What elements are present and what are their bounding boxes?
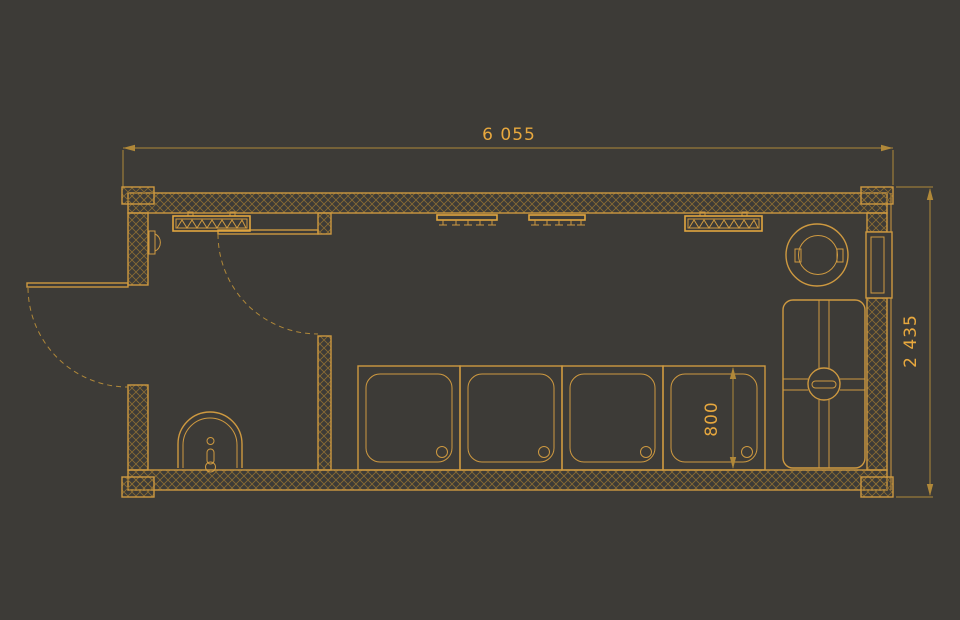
dimension-overall-length: 6 055 [123, 125, 893, 187]
toilet-valve-icon [207, 438, 214, 445]
drain-icon [539, 447, 550, 458]
water-heater-tab-left [795, 249, 801, 262]
wall-handle-bump [155, 234, 160, 251]
wall-top [128, 193, 887, 213]
coat-hook-rail-right [529, 215, 585, 225]
dimension-overall-depth: 2 435 [896, 187, 933, 497]
shower-unit-body [783, 300, 865, 468]
arrow-up-icon [730, 367, 736, 379]
pilaster-bottom-left [122, 477, 154, 497]
water-heater-top [799, 236, 838, 275]
arrow-down-icon [927, 484, 933, 496]
drain-icon [641, 447, 652, 458]
pilaster-bottom-right [861, 477, 893, 497]
pilaster-top-left [122, 187, 154, 204]
toilet [178, 412, 242, 472]
radiator-fins-icon [689, 220, 758, 228]
arrow-down-icon [730, 457, 736, 469]
shower-unit-drain [808, 368, 840, 400]
wall-bottom [128, 470, 887, 490]
radiator-fins-icon [177, 220, 246, 228]
drain-icon [437, 447, 448, 458]
shower-unit [783, 300, 865, 468]
arrow-up-icon [927, 188, 933, 200]
water-heater [786, 224, 848, 286]
window-frame [866, 232, 892, 298]
wall-right-lower [867, 298, 887, 470]
drain-icon [742, 447, 753, 458]
hook-rail-bar [529, 215, 585, 220]
hook-rail-bar [437, 215, 497, 220]
wall-left-upper [128, 213, 148, 285]
floor-plan-canvas: 6 055 2 435 [0, 0, 960, 620]
toilet-bowl-outer [178, 412, 242, 468]
partition-upper [318, 213, 331, 234]
interior-door [218, 230, 318, 334]
arrow-left-icon [123, 145, 135, 151]
radiator-right [685, 212, 762, 231]
overall-length-label: 6 055 [482, 125, 536, 145]
shower-tray-2 [460, 366, 562, 470]
wall-left-lower [128, 385, 148, 470]
entrance-door-swing-arc [28, 288, 128, 387]
radiator-left [173, 212, 250, 231]
coat-hook-rail-left [437, 215, 497, 225]
entrance-door [27, 283, 128, 387]
shower-unit-frame [783, 300, 865, 468]
shower-tray-1 [358, 366, 460, 470]
pilaster-top-right [861, 187, 893, 204]
shower-tray-3 [562, 366, 663, 470]
window [866, 232, 892, 298]
toilet-bowl-inner [183, 418, 237, 468]
wall-handle [149, 231, 160, 254]
shower-unit-handle-icon [812, 381, 836, 388]
floor-plan-svg: 6 055 2 435 [0, 0, 960, 620]
dimension-tray-width: 800 [702, 367, 736, 469]
wall-right-upper [867, 213, 887, 232]
partition-lower [318, 336, 331, 470]
entrance-door-leaf [27, 283, 128, 287]
tray-width-label: 800 [702, 401, 722, 436]
overall-depth-label: 2 435 [901, 314, 921, 368]
partition-wall [318, 213, 331, 470]
arrow-right-icon [881, 145, 893, 151]
interior-door-swing-arc [218, 234, 318, 334]
